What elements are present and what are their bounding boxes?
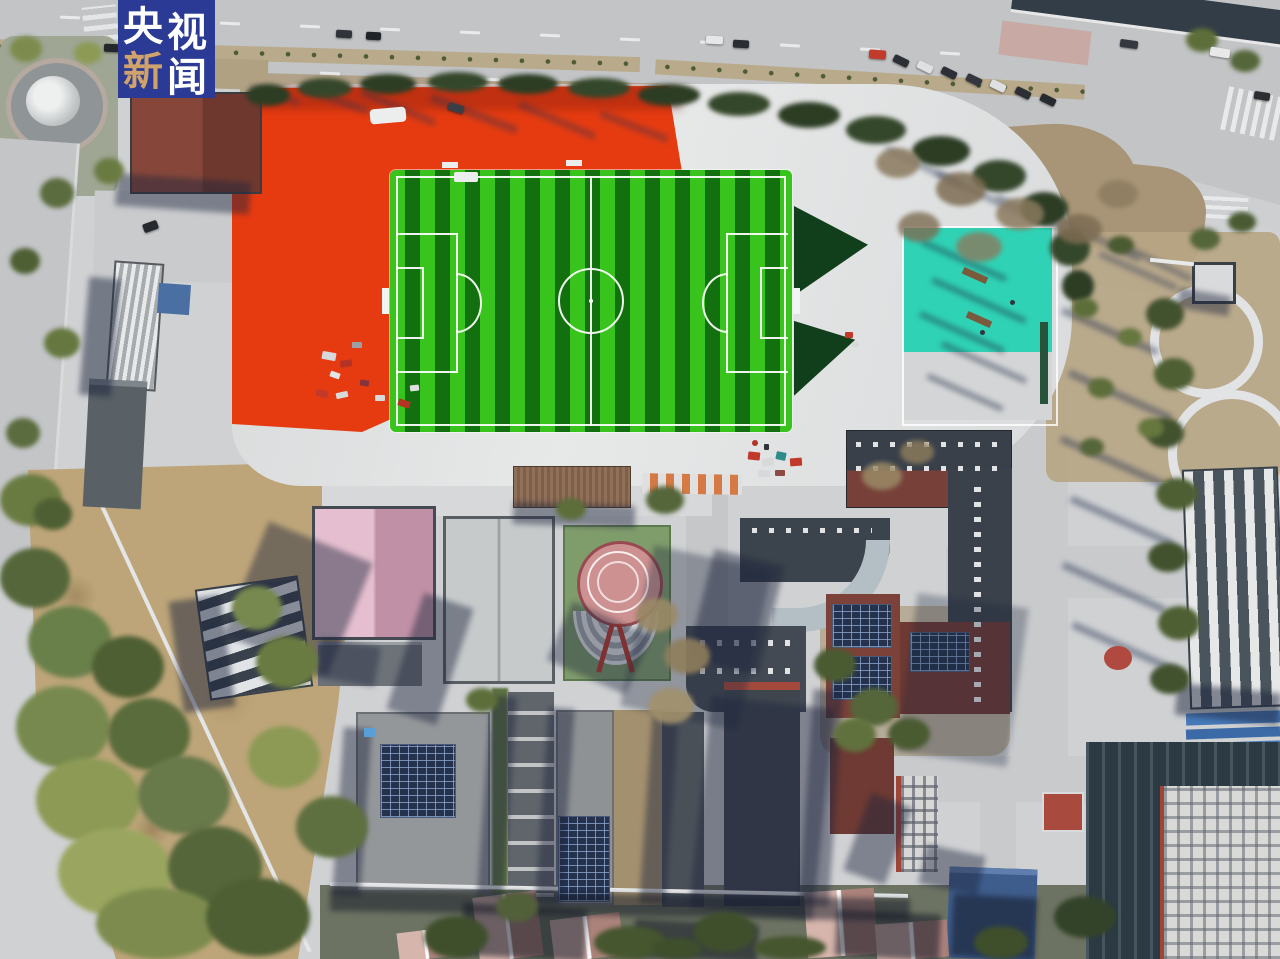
mini-goal-1 <box>442 162 458 168</box>
tall-building <box>724 682 800 906</box>
classroom-d <box>662 712 704 907</box>
maroon-b-solar <box>910 632 970 672</box>
house-roof-3 <box>550 912 625 959</box>
striped-barrier-wall <box>642 473 742 495</box>
courtyard <box>614 710 662 905</box>
logo-char-2: 视 <box>167 13 207 53</box>
amphitheater-ring-inner <box>597 561 639 603</box>
brown-canopy <box>513 466 631 508</box>
training-mat <box>454 172 478 182</box>
complex-north-vents <box>752 528 872 533</box>
gym-annex <box>318 642 422 686</box>
red-roof-cottage <box>1042 792 1084 832</box>
ceremony-lawn <box>563 525 671 681</box>
logo-char-3: 新 <box>123 52 163 92</box>
northwest-roof-building <box>130 92 262 194</box>
goal-left <box>382 288 389 314</box>
white-apartment <box>1160 786 1280 959</box>
cctv-news-watermark: 央 视 新 闻 <box>118 0 215 98</box>
classroom-b <box>508 692 554 897</box>
logo-char-1: 央 <box>123 7 163 47</box>
maroon-a-solar-2 <box>832 656 892 700</box>
east-wing-vents-2 <box>856 466 1002 471</box>
corrugated-shed <box>106 260 165 391</box>
center-block-skylights-1 <box>700 640 792 646</box>
stepped-greenhouse <box>195 575 314 700</box>
maroon-a-solar-1 <box>832 604 892 648</box>
east-vertical-vents <box>974 478 981 702</box>
maroon-low-building <box>830 738 894 834</box>
house-roof-1 <box>396 927 455 959</box>
blue-panel-shed <box>157 283 191 315</box>
teal-court-surface <box>904 228 1052 352</box>
house-roof-5 <box>875 920 949 959</box>
house-roof-4 <box>804 888 878 959</box>
white-tower <box>896 776 938 872</box>
logo-char-4: 闻 <box>167 58 207 98</box>
aerial-photo-school-campus: 央 视 新 闻 <box>0 0 1280 959</box>
court-apron <box>904 352 1052 420</box>
goal-area-left <box>396 267 424 339</box>
house-roof-2 <box>472 890 543 959</box>
teal-court-area <box>902 226 1058 426</box>
goal-right <box>793 288 800 314</box>
gray-hall <box>443 516 555 684</box>
west-long-building <box>83 379 148 510</box>
east-wing-vents-1 <box>856 442 1002 447</box>
football-pitch <box>390 170 792 432</box>
pitch-center-spot <box>589 299 593 303</box>
hedge-strip <box>492 688 508 893</box>
classroom-c-solar <box>558 816 610 902</box>
classroom-a-solar <box>380 744 456 818</box>
pink-gym-roof <box>312 506 436 640</box>
track-red-shade <box>232 84 682 110</box>
rock-garden-rocks <box>26 76 80 126</box>
mini-goal-2 <box>566 160 582 166</box>
greenhouse-rows <box>1182 466 1280 709</box>
blue-building <box>946 866 1037 959</box>
center-block-skylights-2 <box>700 668 792 674</box>
goal-area-right <box>760 267 788 339</box>
gatehouse <box>1192 262 1236 304</box>
